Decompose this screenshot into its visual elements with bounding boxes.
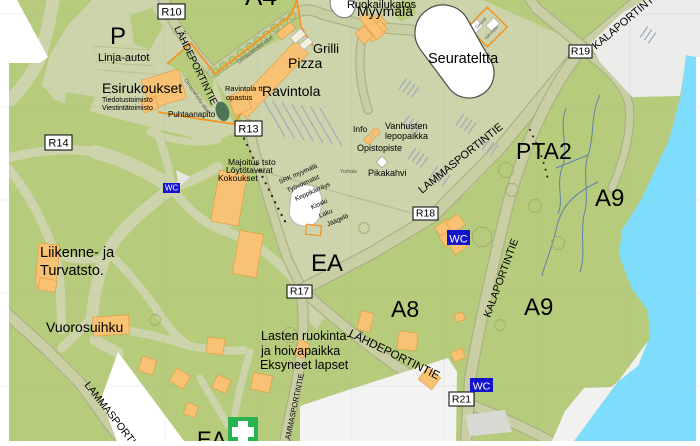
svg-text:WC: WC bbox=[473, 381, 491, 393]
svg-text:R17: R17 bbox=[290, 286, 309, 298]
svg-text:R13: R13 bbox=[238, 124, 258, 136]
svg-text:Ruokailukatos: Ruokailukatos bbox=[347, 0, 417, 11]
svg-text:Vuorosuihku: Vuorosuihku bbox=[46, 319, 123, 335]
svg-text:Opistopiste: Opistopiste bbox=[357, 143, 402, 153]
svg-text:R18: R18 bbox=[416, 208, 435, 220]
svg-text:Esirukoukset: Esirukoukset bbox=[102, 80, 182, 96]
svg-text:R10: R10 bbox=[161, 7, 181, 19]
svg-text:Liikenne- ja: Liikenne- ja bbox=[40, 245, 115, 261]
svg-text:WC: WC bbox=[449, 234, 467, 246]
svg-text:opastus: opastus bbox=[226, 93, 253, 102]
svg-text:Lasten ruokinta-: Lasten ruokinta- bbox=[261, 329, 351, 343]
svg-text:Vanhusten: Vanhusten bbox=[385, 121, 427, 131]
svg-text:Kokoukset: Kokoukset bbox=[218, 173, 258, 183]
svg-text:Ravintola: Ravintola bbox=[262, 83, 321, 99]
svg-text:Yorhala: Yorhala bbox=[340, 169, 357, 175]
svg-text:ja hoivapaikka: ja hoivapaikka bbox=[260, 344, 340, 358]
svg-text:A9: A9 bbox=[595, 185, 624, 212]
svg-text:Turvatsto.: Turvatsto. bbox=[40, 263, 104, 279]
svg-text:Pizza: Pizza bbox=[288, 55, 322, 71]
svg-text:lepopaikka: lepopaikka bbox=[385, 131, 428, 141]
svg-text:Seurateltta: Seurateltta bbox=[428, 51, 499, 67]
svg-text:Linja-autot: Linja-autot bbox=[98, 52, 149, 64]
svg-text:Ravintola tt: Ravintola tt bbox=[225, 84, 263, 93]
svg-text:Eksyneet lapset: Eksyneet lapset bbox=[260, 358, 349, 372]
svg-text:EA: EA bbox=[197, 427, 227, 441]
svg-text:R14: R14 bbox=[48, 138, 68, 150]
svg-text:PTA2: PTA2 bbox=[516, 138, 572, 164]
svg-text:A9: A9 bbox=[524, 294, 553, 321]
svg-text:Tiedotustoimisto: Tiedotustoimisto bbox=[102, 97, 153, 104]
svg-text:Grilli: Grilli bbox=[313, 41, 339, 56]
svg-text:A4: A4 bbox=[245, 0, 277, 11]
svg-text:Pikakahvi: Pikakahvi bbox=[368, 168, 407, 178]
svg-text:R19: R19 bbox=[571, 46, 590, 58]
svg-text:P: P bbox=[110, 23, 126, 50]
svg-text:R21: R21 bbox=[452, 394, 471, 406]
svg-text:Viestintätoimisto: Viestintätoimisto bbox=[102, 105, 153, 112]
svg-text:A8: A8 bbox=[391, 296, 419, 322]
svg-text:WC: WC bbox=[165, 184, 179, 193]
svg-text:EA: EA bbox=[311, 250, 343, 277]
svg-text:Info: Info bbox=[353, 124, 367, 134]
